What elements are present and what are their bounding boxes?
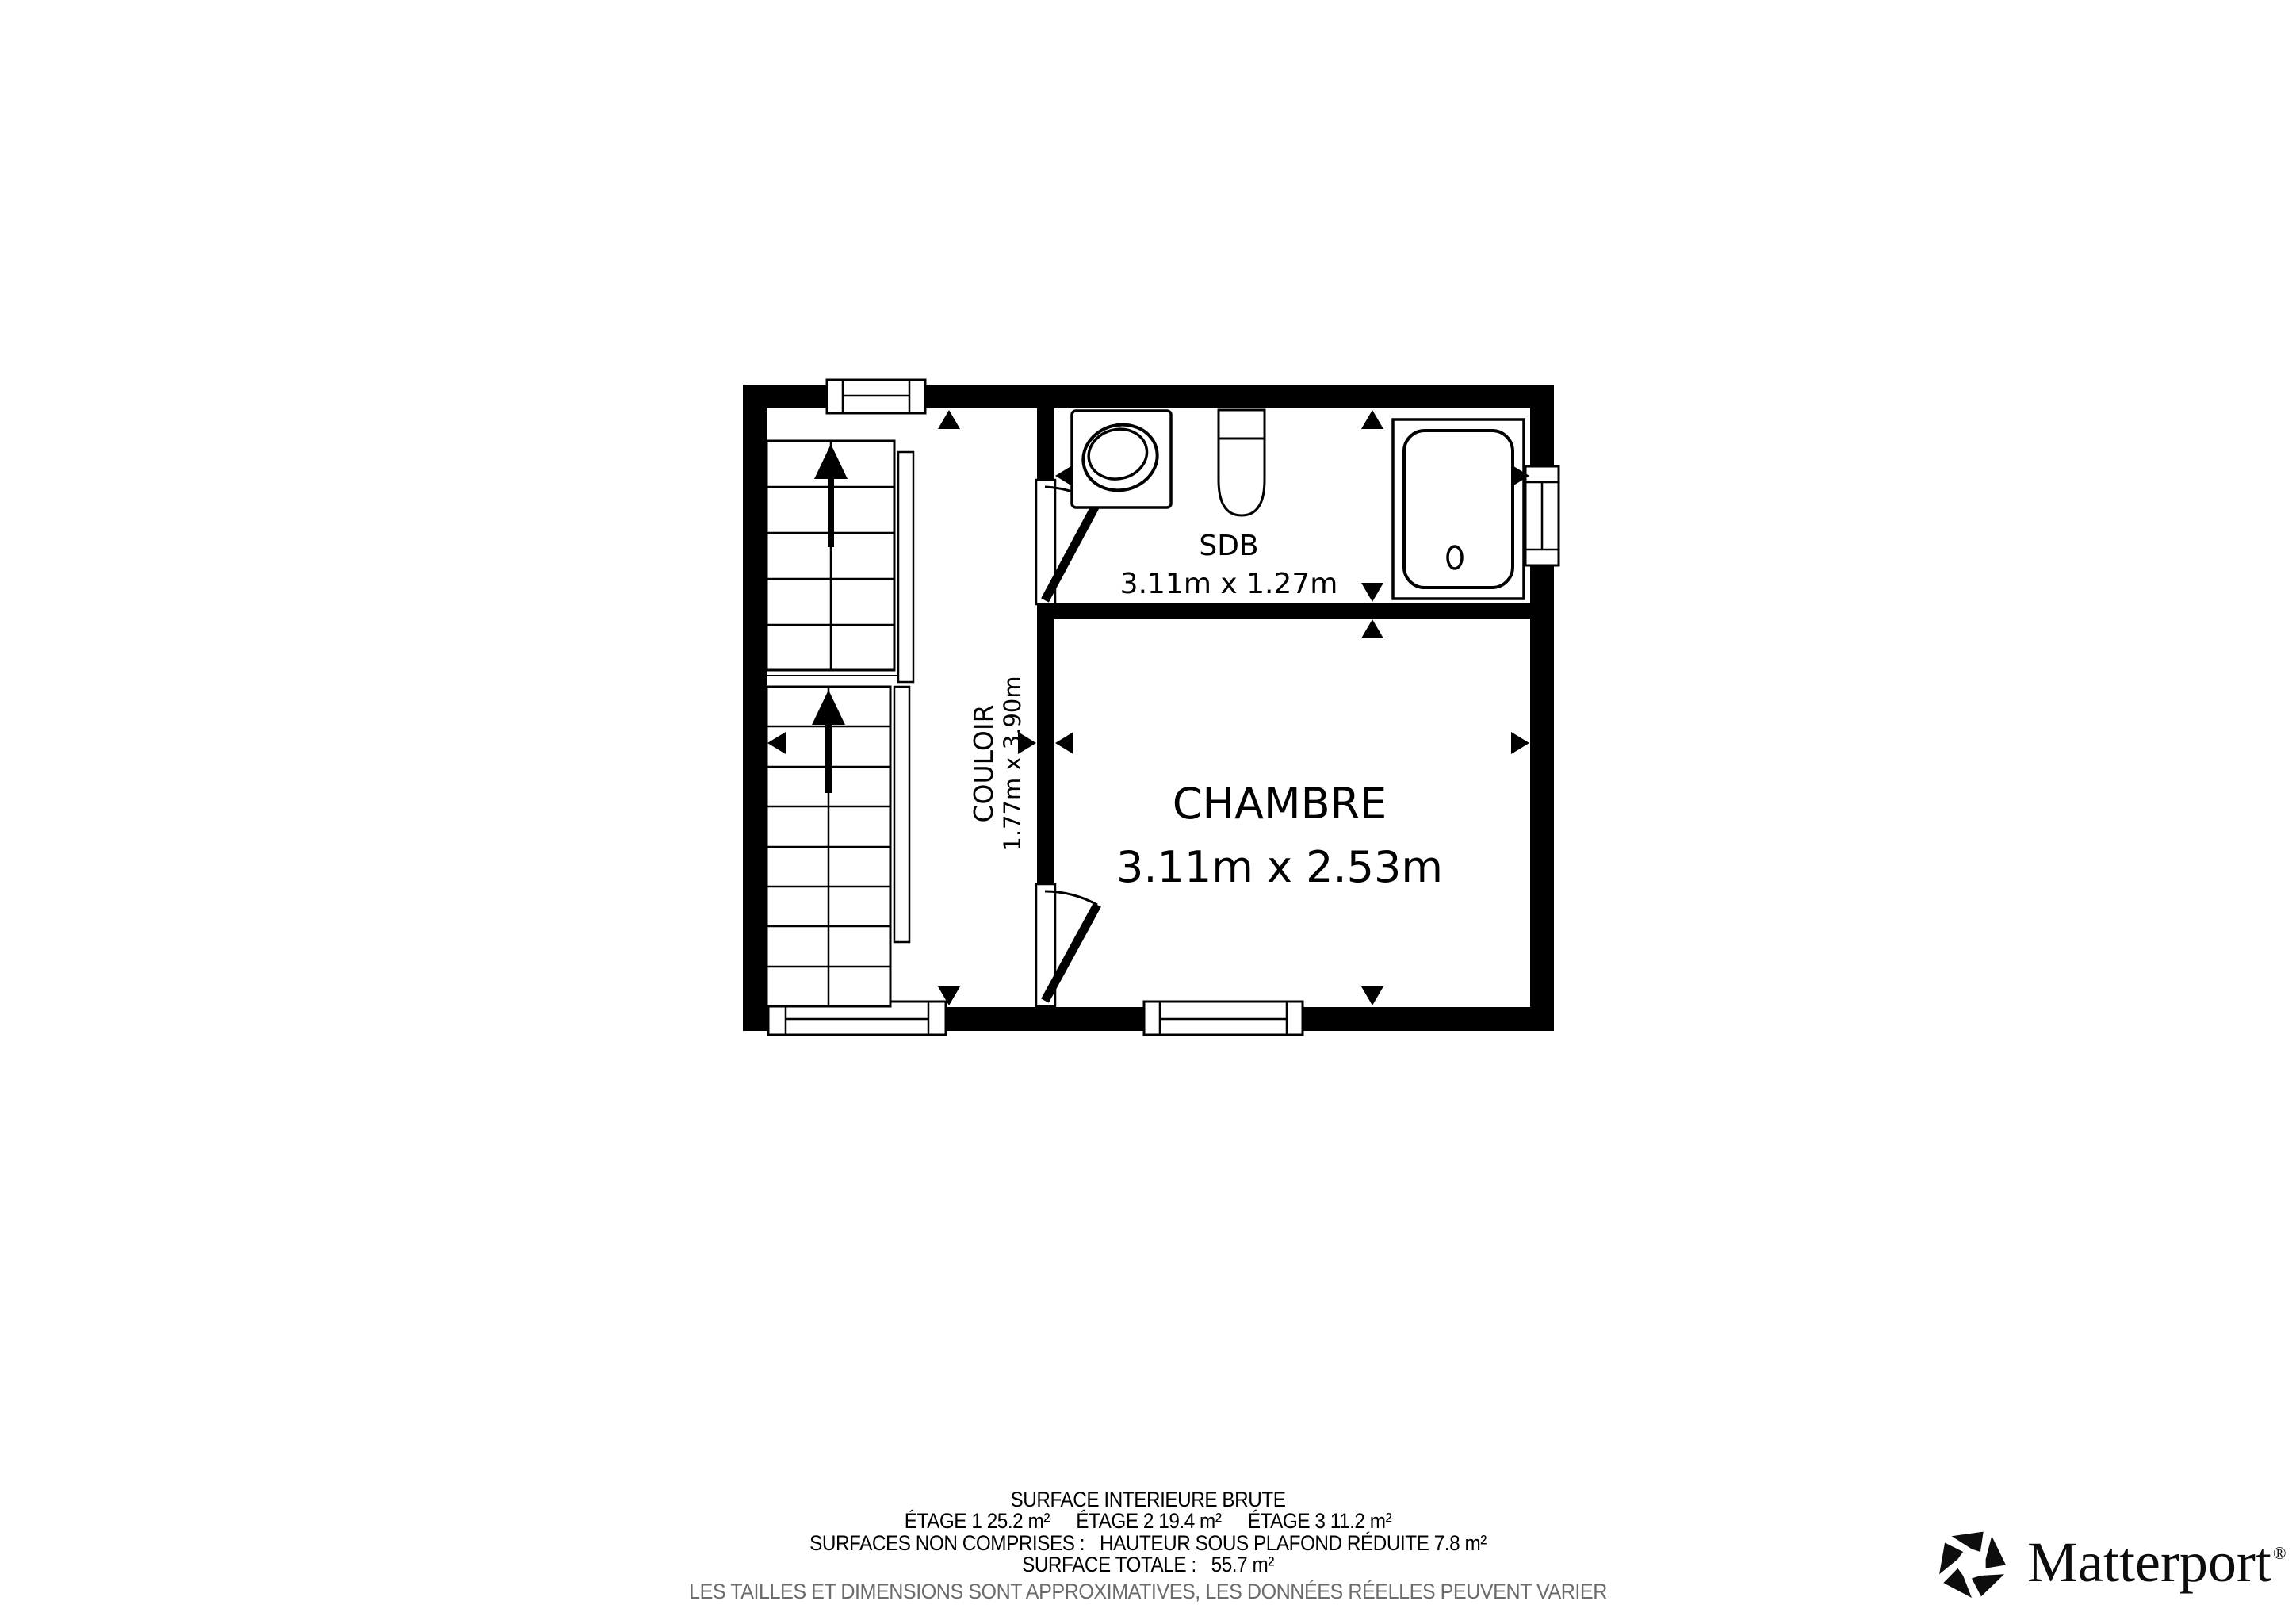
matterport-logo-icon — [1935, 1524, 2008, 1603]
matterport-wordmark: Matterport — [2027, 1524, 2271, 1600]
stair-railing-lower — [894, 687, 909, 942]
measure-arrow-icon — [1361, 583, 1383, 602]
non-comprises-value: HAUTEUR SOUS PLAFOND RÉDUITE 7.8 m² — [1100, 1531, 1487, 1555]
etage-2-area: ÉTAGE 2 19.4 m² — [1076, 1509, 1221, 1533]
summary-total: SURFACE TOTALE : 55.7 m² — [115, 1553, 2181, 1577]
room-label-couloir: COULOIR — [968, 704, 999, 822]
window-top — [827, 380, 925, 413]
room-dimensions-couloir: 1.77m x 3.90m — [999, 676, 1026, 851]
total-label: SURFACE TOTALE : — [1022, 1553, 1196, 1576]
measure-arrow-icon — [1055, 465, 1073, 487]
divider-wall-lower — [1037, 603, 1054, 885]
staircase — [767, 441, 913, 1006]
summary-disclaimer: LES TAILLES ET DIMENSIONS SONT APPROXIMA… — [80, 1580, 2215, 1604]
measure-arrow-icon — [1511, 732, 1529, 754]
bathtub-drain — [1448, 546, 1462, 569]
sink — [1072, 411, 1171, 507]
registered-mark: ® — [2273, 1545, 2286, 1562]
toilet-tank — [1219, 410, 1265, 439]
bathtub — [1393, 419, 1524, 599]
room-label-sdb: SDB — [1199, 530, 1258, 562]
chambre-door — [1036, 884, 1097, 1006]
measure-arrow-icon — [1361, 986, 1383, 1005]
toilet — [1219, 410, 1265, 515]
page: { "floor_plan": { "rooms": [ {"id": "sdb… — [0, 0, 2296, 1624]
toilet-bowl — [1219, 439, 1265, 515]
non-comprises-label: SURFACES NON COMPRISES : — [809, 1531, 1085, 1555]
etage-3-area: ÉTAGE 3 11.2 m² — [1248, 1509, 1391, 1533]
window-bottom-center — [1144, 1002, 1303, 1035]
measure-arrow-icon — [1361, 619, 1383, 638]
window-right — [1525, 466, 1559, 565]
measure-arrow-icon — [1055, 732, 1073, 754]
measure-arrow-icon — [1361, 410, 1383, 429]
etage-1-area: ÉTAGE 1 25.2 m² — [905, 1509, 1050, 1533]
matterport-logo: Matterport ® — [1935, 1524, 2286, 1603]
room-dimensions-sdb: 3.11m x 1.27m — [1120, 568, 1338, 600]
measure-arrow-icon — [938, 410, 960, 429]
room-dimensions-chambre: 3.11m x 2.53m — [1116, 842, 1443, 892]
divider-wall-upper — [1037, 408, 1054, 481]
summary-etages: ÉTAGE 1 25.2 m² ÉTAGE 2 19.4 m² ÉTAGE 3 … — [115, 1509, 2181, 1534]
room-label-chambre: CHAMBRE — [1173, 779, 1387, 829]
total-value: 55.7 m² — [1211, 1553, 1274, 1576]
sdb-chambre-wall — [1054, 603, 1530, 619]
stair-railing-upper — [898, 452, 913, 682]
floor-plan: SDB 3.11m x 1.27m CHAMBRE 3.11m x 2.53m … — [0, 0, 2296, 1624]
